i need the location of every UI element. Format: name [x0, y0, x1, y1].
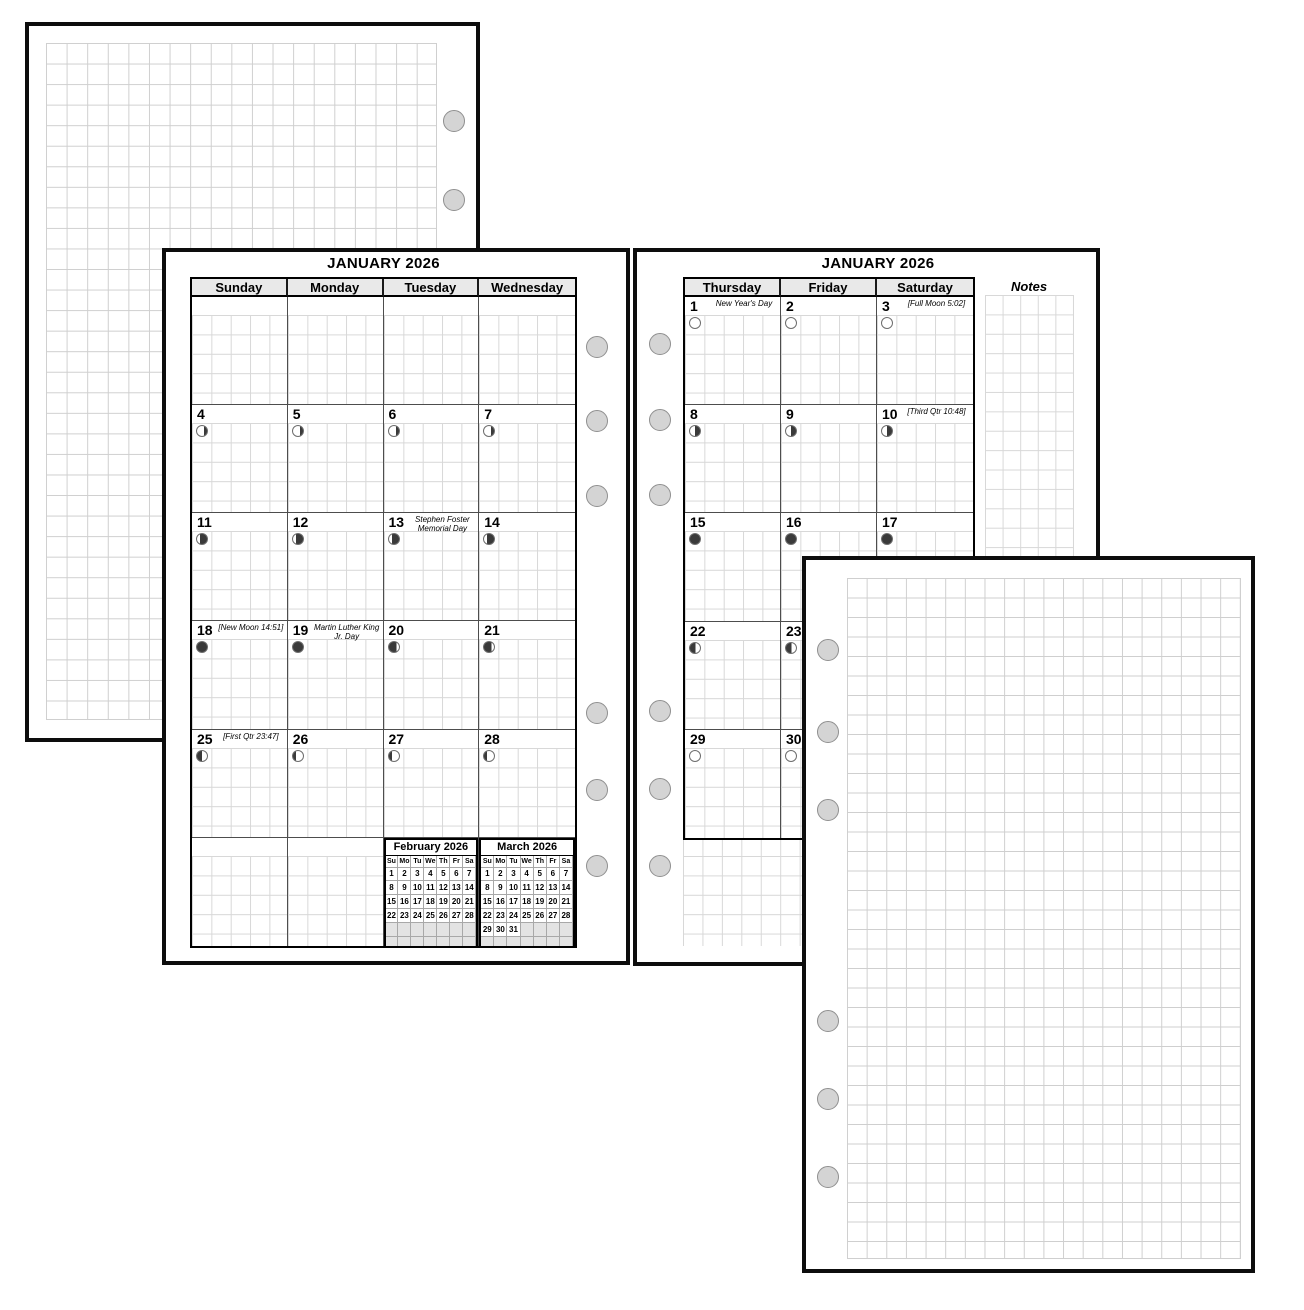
binder-hole [586, 855, 608, 877]
mini-day-cell: 23 [494, 909, 507, 923]
binder-hole [586, 336, 608, 358]
mini-day-cell [534, 937, 547, 946]
binder-hole [586, 410, 608, 432]
grid-lines [479, 748, 575, 837]
mini-day-cell: 7 [463, 867, 476, 881]
mini-day-cell: 4 [521, 867, 534, 881]
date-number: 2 [786, 298, 794, 314]
binder-hole [649, 484, 671, 506]
binder-hole [586, 702, 608, 724]
mini-day-cell [521, 923, 534, 937]
binder-hole [817, 1010, 839, 1032]
mini-calendar-february: February 2026 SuMoTuWeThFrSa 12345678910… [384, 838, 479, 946]
date-number: 15 [690, 514, 706, 530]
mini-day-cell [450, 937, 463, 946]
mini-day-cell [560, 937, 573, 946]
day-cell: 15 [685, 513, 781, 621]
mini-day-cell [560, 923, 573, 937]
binder-hole [586, 485, 608, 507]
binder-hole [443, 110, 465, 132]
date-number: 6 [389, 406, 397, 422]
day-cell-empty [479, 297, 575, 405]
moon-phase-icon [388, 750, 400, 762]
date-annotation: Stephen Foster Memorial Day [409, 515, 477, 533]
grid-lines [781, 315, 876, 404]
grid-lines [479, 531, 575, 620]
mini-day-cell: 8 [386, 881, 399, 895]
mini-day-cell [481, 937, 494, 946]
date-number: 7 [484, 406, 492, 422]
day-cell: 25[First Qtr 23:47] [192, 730, 288, 838]
date-number: 26 [293, 731, 309, 747]
mini-day-cell: 6 [547, 867, 560, 881]
date-number: 18 [197, 622, 213, 638]
grid-lines [877, 315, 973, 404]
date-number: 9 [786, 406, 794, 422]
grid-lines [479, 639, 575, 728]
binder-hole [649, 855, 671, 877]
moon-phase-icon [388, 425, 400, 437]
moon-phase-icon [689, 642, 701, 654]
day-cell: 4 [192, 405, 288, 513]
moon-phase-icon [785, 750, 797, 762]
day-cell-empty [192, 297, 288, 405]
weekday-header: Friday [781, 279, 877, 297]
day-cell: 27 [384, 730, 480, 838]
mini-day-cell: 2 [398, 867, 411, 881]
mini-day-cell: 4 [424, 867, 437, 881]
date-annotation: New Year's Day [710, 299, 778, 308]
grid-lines [384, 639, 479, 728]
date-number: 29 [690, 731, 706, 747]
mini-day-cell: 6 [450, 867, 463, 881]
date-number: 14 [484, 514, 500, 530]
month-page-left: JANUARY 2026 Sunday Monday Tuesday Wedne… [162, 248, 630, 965]
date-number: 27 [389, 731, 405, 747]
mini-day-cell [463, 937, 476, 946]
day-cell: 21 [479, 621, 575, 729]
mini-calendar-body: 1234567891011121314151617181920212223242… [386, 867, 477, 946]
moon-phase-icon [388, 533, 400, 545]
moon-phase-icon [292, 425, 304, 437]
grid-lines [685, 531, 780, 620]
date-annotation: [Third Qtr 10:48] [902, 407, 971, 416]
day-cell: 9 [781, 405, 877, 513]
mini-day-cell: 3 [507, 867, 520, 881]
grid-lines [192, 748, 287, 837]
mini-calendar-cell: February 2026 SuMoTuWeThFrSa 12345678910… [384, 838, 480, 946]
grid-lines [384, 748, 479, 837]
date-number: 23 [786, 623, 802, 639]
day-cell: 2 [781, 297, 877, 405]
binder-hole [817, 799, 839, 821]
day-cell: 28 [479, 730, 575, 838]
grid-lines [479, 423, 575, 512]
mini-day-cell: 9 [398, 881, 411, 895]
page-title: JANUARY 2026 [683, 255, 1073, 272]
mini-day-cell: 5 [534, 867, 547, 881]
mini-day-cell: 24 [411, 909, 424, 923]
mini-day-cell [534, 923, 547, 937]
grid-lines [384, 423, 479, 512]
mini-calendar-title: March 2026 [481, 840, 573, 856]
grid-lines [685, 423, 780, 512]
mini-day-cell [547, 923, 560, 937]
date-annotation: Martin Luther King Jr. Day [313, 623, 381, 641]
date-annotation: [Full Moon 5:02] [902, 299, 971, 308]
notes-label: Notes [985, 279, 1073, 294]
date-annotation: [New Moon 14:51] [217, 623, 285, 632]
mini-day-cell: 7 [560, 867, 573, 881]
date-number: 12 [293, 514, 309, 530]
date-number: 22 [690, 623, 706, 639]
date-number: 17 [882, 514, 898, 530]
mini-day-cell [463, 923, 476, 937]
date-number: 11 [197, 514, 212, 530]
day-cell: 12 [288, 513, 384, 621]
mini-day-cell: 17 [411, 895, 424, 909]
mini-day-cell [547, 937, 560, 946]
weekday-header: Monday [288, 279, 384, 297]
grid-lines [685, 748, 780, 838]
day-cell: 22 [685, 622, 781, 730]
mini-day-cell: 29 [481, 923, 494, 937]
mini-day-cell: 31 [507, 923, 520, 937]
day-cell: 7 [479, 405, 575, 513]
grid-lines [877, 423, 973, 512]
mini-day-cell [450, 923, 463, 937]
mini-day-cell: 25 [424, 909, 437, 923]
date-number: 25 [197, 731, 213, 747]
binder-hole [649, 409, 671, 431]
mini-day-cell [386, 923, 399, 937]
mini-day-cell: 11 [424, 881, 437, 895]
grid-lines [685, 315, 780, 404]
grid-lines [192, 856, 287, 946]
date-number: 3 [882, 298, 890, 314]
mini-day-cell [411, 937, 424, 946]
day-cell: 10[Third Qtr 10:48] [877, 405, 973, 513]
date-number: 8 [690, 406, 698, 422]
moon-phase-icon [785, 642, 797, 654]
day-cell: 13Stephen Foster Memorial Day [384, 513, 480, 621]
mini-day-cell [494, 937, 507, 946]
day-cell: 11 [192, 513, 288, 621]
mini-day-cell: 5 [437, 867, 450, 881]
mini-day-cell: 17 [507, 895, 520, 909]
mini-day-cell: 19 [437, 895, 450, 909]
mini-day-cell: 19 [534, 895, 547, 909]
weekday-header: Thursday [685, 279, 781, 297]
mini-day-cell: 13 [450, 881, 463, 895]
moon-phase-icon [388, 641, 400, 653]
mini-day-cell [386, 937, 399, 946]
date-number: 30 [786, 731, 802, 747]
grid-lines [288, 315, 383, 404]
mini-calendar-body: 1234567891011121314151617181920212223242… [481, 867, 573, 946]
mini-day-cell: 14 [560, 881, 573, 895]
grid-lines [192, 315, 287, 404]
grid-lines [384, 531, 479, 620]
mini-day-cell: 25 [521, 909, 534, 923]
grid-lines [288, 639, 383, 728]
mini-day-cell: 21 [560, 895, 573, 909]
binder-hole [586, 779, 608, 801]
mini-day-cell: 18 [521, 895, 534, 909]
mini-day-cell [411, 923, 424, 937]
mini-day-cell [398, 937, 411, 946]
mini-day-cell: 22 [386, 909, 399, 923]
mini-day-cell: 13 [547, 881, 560, 895]
moon-phase-icon [689, 750, 701, 762]
binder-hole [649, 700, 671, 722]
moon-phase-icon [881, 317, 893, 329]
mini-day-cell: 23 [398, 909, 411, 923]
mini-calendar-day-headers: SuMoTuWeThFrSa [481, 856, 573, 867]
grid-lines [288, 531, 383, 620]
mini-day-cell: 15 [386, 895, 399, 909]
day-cell-empty [288, 297, 384, 405]
day-cell-empty [384, 297, 480, 405]
moon-phase-icon [785, 317, 797, 329]
day-cell: 3[Full Moon 5:02] [877, 297, 973, 405]
date-number: 16 [786, 514, 802, 530]
mini-day-cell [521, 937, 534, 946]
graph-grid [847, 578, 1241, 1259]
mini-day-cell: 30 [494, 923, 507, 937]
mini-day-cell [424, 923, 437, 937]
day-cell-empty [288, 838, 384, 946]
mini-day-cell [437, 923, 450, 937]
mini-day-cell [398, 923, 411, 937]
mini-day-cell [507, 937, 520, 946]
moon-phase-icon [292, 750, 304, 762]
grid-sheet-bottom-right [802, 556, 1255, 1273]
mini-day-cell: 10 [507, 881, 520, 895]
weekday-header: Wednesday [479, 279, 575, 297]
mini-day-cell: 16 [398, 895, 411, 909]
grid-lines [479, 315, 575, 404]
mini-day-cell: 20 [547, 895, 560, 909]
moon-phase-icon [689, 317, 701, 329]
grid-lines [685, 640, 780, 729]
binder-hole [649, 778, 671, 800]
mini-day-cell: 12 [534, 881, 547, 895]
date-number: 20 [389, 622, 405, 638]
day-cell: 6 [384, 405, 480, 513]
day-cell: 14 [479, 513, 575, 621]
day-cell: 18[New Moon 14:51] [192, 621, 288, 729]
binder-hole [817, 721, 839, 743]
day-cell: 20 [384, 621, 480, 729]
mini-day-cell: 10 [411, 881, 424, 895]
moon-phase-icon [196, 750, 208, 762]
grid-lines [288, 748, 383, 837]
mini-day-cell: 24 [507, 909, 520, 923]
date-number: 1 [690, 298, 698, 314]
mini-day-cell: 14 [463, 881, 476, 895]
grid-lines [384, 315, 479, 404]
day-cell-empty [192, 838, 288, 946]
day-cell: 26 [288, 730, 384, 838]
date-number: 13 [389, 514, 405, 530]
mini-day-cell [437, 937, 450, 946]
grid-lines [288, 423, 383, 512]
grid-lines [288, 856, 383, 946]
mini-day-cell [424, 937, 437, 946]
binder-hole [817, 1088, 839, 1110]
mini-day-cell: 28 [560, 909, 573, 923]
binder-hole [817, 1166, 839, 1188]
mini-day-cell: 21 [463, 895, 476, 909]
weekday-header: Saturday [877, 279, 973, 297]
mini-calendar-cell: March 2026 SuMoTuWeThFrSa 12345678910111… [479, 838, 575, 946]
mini-day-cell: 20 [450, 895, 463, 909]
mini-day-cell: 8 [481, 881, 494, 895]
mini-day-cell: 12 [437, 881, 450, 895]
grid-lines [192, 423, 287, 512]
binder-hole [443, 189, 465, 211]
mini-calendar-march: March 2026 SuMoTuWeThFrSa 12345678910111… [479, 838, 575, 946]
grid-lines [781, 423, 876, 512]
mini-calendar-title: February 2026 [386, 840, 477, 856]
date-number: 19 [293, 622, 309, 638]
mini-day-cell: 22 [481, 909, 494, 923]
weekday-header: Sunday [192, 279, 288, 297]
mini-day-cell: 26 [534, 909, 547, 923]
day-cell: 29 [685, 730, 781, 838]
mini-day-cell: 1 [386, 867, 399, 881]
mini-day-cell: 15 [481, 895, 494, 909]
binder-hole [649, 333, 671, 355]
day-cell: 8 [685, 405, 781, 513]
date-number: 21 [484, 622, 500, 638]
moon-phase-icon [483, 750, 495, 762]
day-cell: 5 [288, 405, 384, 513]
mini-day-cell: 9 [494, 881, 507, 895]
date-number: 10 [882, 406, 898, 422]
day-cell: 1New Year's Day [685, 297, 781, 405]
date-number: 5 [293, 406, 301, 422]
mini-day-cell: 3 [411, 867, 424, 881]
grid-lines [192, 531, 287, 620]
date-annotation: [First Qtr 23:47] [217, 732, 285, 741]
page-title: JANUARY 2026 [190, 255, 577, 272]
moon-phase-icon [292, 533, 304, 545]
month-table-left: Sunday Monday Tuesday Wednesday 4 5 6 7 … [190, 277, 577, 948]
date-number: 28 [484, 731, 500, 747]
mini-day-cell: 27 [450, 909, 463, 923]
mini-day-cell: 2 [494, 867, 507, 881]
mini-day-cell: 26 [437, 909, 450, 923]
mini-day-cell: 16 [494, 895, 507, 909]
weekday-header: Tuesday [384, 279, 480, 297]
binder-hole [817, 639, 839, 661]
planner-preview: JANUARY 2026 Sunday Monday Tuesday Wedne… [0, 0, 1304, 1310]
mini-day-cell: 1 [481, 867, 494, 881]
mini-day-cell: 28 [463, 909, 476, 923]
mini-day-cell: 11 [521, 881, 534, 895]
mini-day-cell: 27 [547, 909, 560, 923]
grid-lines [192, 639, 287, 728]
day-cell: 19Martin Luther King Jr. Day [288, 621, 384, 729]
mini-day-cell: 18 [424, 895, 437, 909]
date-number: 4 [197, 406, 205, 422]
mini-calendar-day-headers: SuMoTuWeThFrSa [386, 856, 477, 867]
